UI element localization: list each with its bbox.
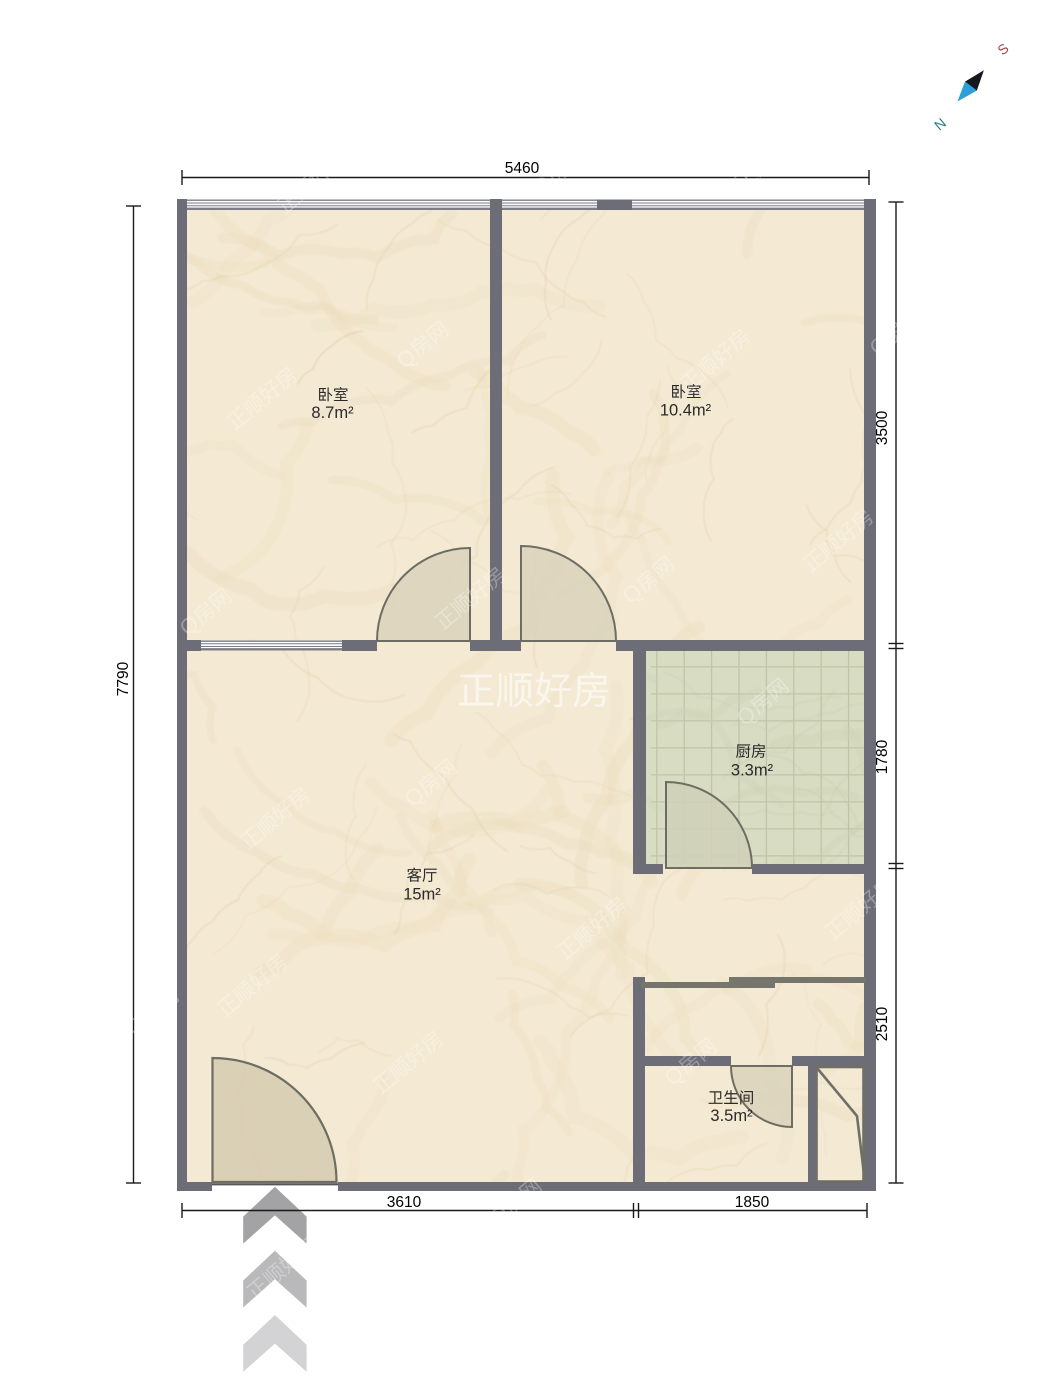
svg-text:8.7m²: 8.7m²: [311, 404, 354, 422]
svg-text:3.3m²: 3.3m²: [731, 762, 774, 780]
svg-text:1780: 1780: [874, 739, 891, 774]
svg-text:1850: 1850: [735, 1194, 770, 1211]
svg-text:3.5m²: 3.5m²: [710, 1107, 753, 1125]
svg-text:3500: 3500: [874, 410, 891, 445]
svg-text:5460: 5460: [505, 160, 540, 177]
svg-text:15m²: 15m²: [403, 886, 441, 904]
svg-text:3610: 3610: [387, 1194, 422, 1211]
svg-text:10.4m²: 10.4m²: [660, 402, 712, 420]
svg-text:2510: 2510: [874, 1006, 891, 1041]
svg-text:7790: 7790: [115, 661, 132, 696]
